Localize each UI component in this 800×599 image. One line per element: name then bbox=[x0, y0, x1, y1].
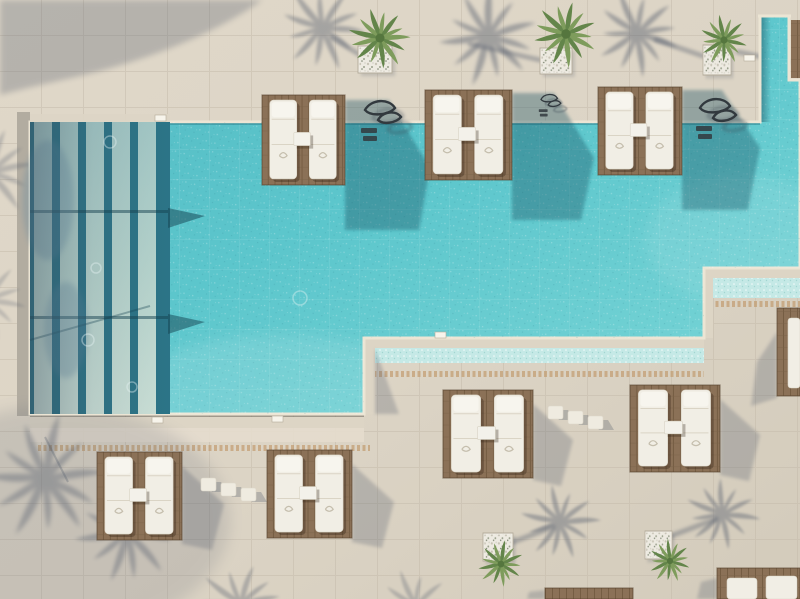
daybed-platform-bottom-2 bbox=[267, 450, 352, 538]
daybed-platform-bottom-1 bbox=[97, 452, 182, 540]
deck-sign bbox=[155, 115, 166, 121]
deck-sign bbox=[435, 332, 446, 338]
daybed-platform-bottom-right bbox=[717, 568, 800, 599]
deck-sign bbox=[152, 417, 163, 423]
daybed-platform-top-1 bbox=[262, 95, 345, 185]
daybed bbox=[727, 578, 757, 599]
daybed-platform-bottom-4-body bbox=[630, 385, 720, 472]
daybed-platform-top-2-body bbox=[425, 90, 512, 180]
daybed-platform-top-2 bbox=[425, 90, 512, 180]
daybed bbox=[788, 318, 800, 388]
daybed-platform-bottom-center-wood bbox=[545, 588, 633, 599]
daybed-platform-bottom-center bbox=[545, 588, 633, 599]
deck-sign bbox=[272, 416, 283, 422]
daybed-platform-bottom-3 bbox=[443, 390, 533, 478]
daybed-platform-top-3 bbox=[598, 87, 682, 175]
scene-svg bbox=[0, 0, 800, 599]
daybed-platform-bottom-2-body bbox=[267, 450, 352, 538]
daybed-platform-bottom-1-body bbox=[97, 452, 182, 540]
daybed-platform-bottom-3-body bbox=[443, 390, 533, 478]
daybed bbox=[766, 576, 797, 599]
daybed-platform-top-3-body bbox=[598, 87, 682, 175]
deck-sign bbox=[744, 55, 755, 61]
daybed-platform-bottom-4 bbox=[630, 385, 720, 472]
daybed-platform-top-1-body bbox=[262, 95, 345, 185]
pool-aerial-photo bbox=[0, 0, 800, 599]
daybed-platform-right-edge bbox=[777, 308, 800, 396]
